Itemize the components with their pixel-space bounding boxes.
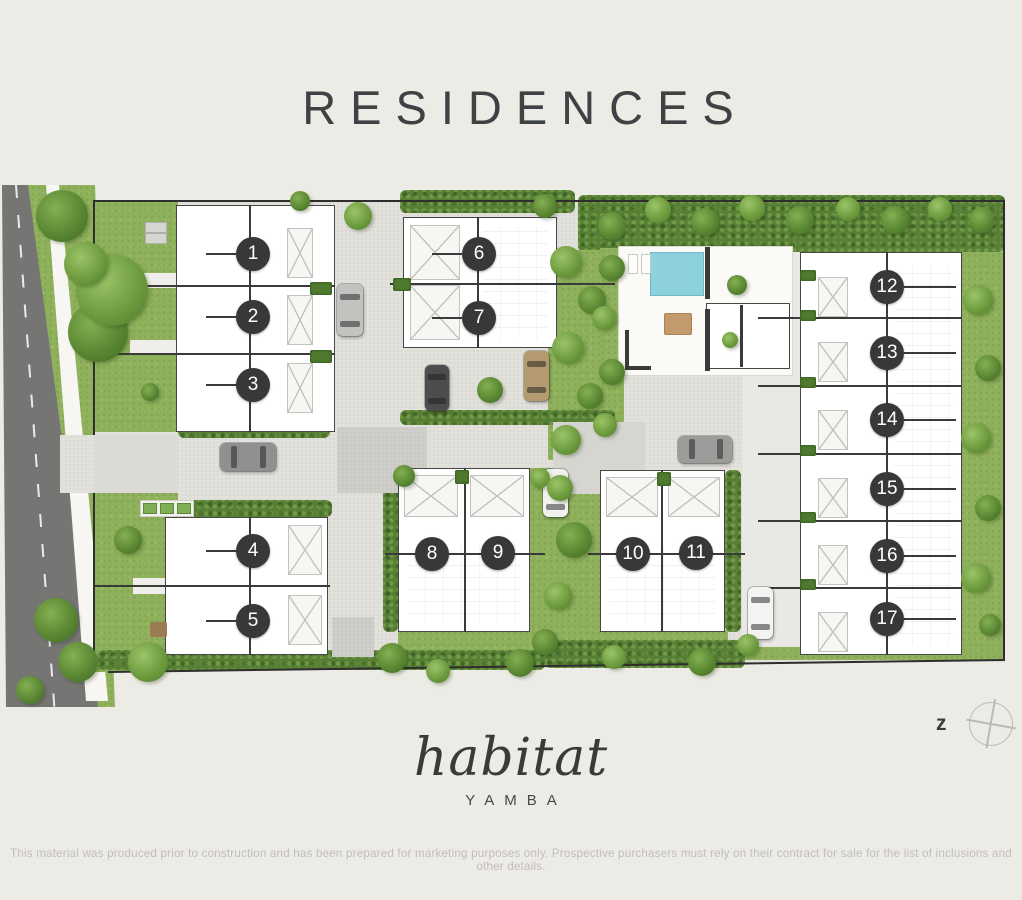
tree-icon [928, 197, 952, 221]
car-glass [527, 387, 546, 393]
marker-leader [432, 253, 462, 255]
tree-icon [532, 629, 558, 655]
disclaimer-text: This material was produced prior to cons… [0, 847, 1022, 873]
marker-leader [206, 253, 236, 255]
car-icon [524, 351, 549, 401]
logo-wordmark: habitat [0, 730, 1022, 787]
marker-leader [904, 555, 956, 557]
tree-icon [969, 207, 995, 233]
tree-icon [544, 582, 572, 610]
hedge-bar [800, 270, 816, 281]
tree-icon [593, 413, 617, 437]
marker-leader [904, 618, 956, 620]
tree-icon [58, 642, 98, 682]
residence-marker-5[interactable]: 5 [236, 604, 270, 638]
tree-icon [737, 634, 759, 656]
page-title: RESIDENCES [0, 80, 1022, 135]
tree-icon [16, 676, 44, 704]
residence-marker-4[interactable]: 4 [236, 534, 270, 568]
hedge-bar [800, 579, 816, 590]
hedge-bar [800, 512, 816, 523]
car-glass [428, 398, 446, 404]
lot-divider [758, 520, 962, 522]
hedge-bar [455, 470, 469, 484]
tree-icon [34, 598, 78, 642]
tree-icon [975, 355, 1001, 381]
garage-box [818, 277, 848, 317]
lot-divider [758, 453, 962, 455]
residence-marker-15[interactable]: 15 [870, 472, 904, 506]
tree-icon [533, 194, 557, 218]
marker-leader [206, 316, 236, 318]
garage-box [818, 342, 848, 382]
marker-leader [904, 352, 956, 354]
garage-box [818, 545, 848, 585]
residence-marker-9[interactable]: 9 [481, 536, 515, 570]
tree-icon [881, 206, 909, 234]
marker-leader [206, 620, 236, 622]
car-glass [260, 446, 266, 467]
tree-icon [36, 190, 88, 242]
hedge-bar [800, 445, 816, 456]
tree-icon [961, 423, 991, 453]
tree-icon [547, 475, 573, 501]
tree-icon [691, 208, 719, 236]
tree-icon [961, 563, 991, 593]
car-glass [340, 321, 360, 327]
lot-divider [390, 283, 615, 285]
marker-leader [904, 419, 956, 421]
alfresco-patio [332, 617, 374, 657]
garage-box [818, 410, 848, 450]
tree-icon [114, 526, 142, 554]
lot-divider [758, 317, 962, 319]
garage-box [287, 363, 313, 413]
garage-box [818, 478, 848, 518]
car-glass [428, 374, 446, 380]
amenity-wall [705, 247, 710, 299]
hedge-zone [175, 500, 332, 517]
car-glass [527, 361, 546, 367]
residence-marker-2[interactable]: 2 [236, 300, 270, 334]
garage-box [606, 477, 658, 517]
swimming-pool [650, 252, 704, 296]
tree-icon [722, 332, 738, 348]
tree-icon [592, 306, 616, 330]
tree-icon [645, 197, 671, 223]
party-wall [464, 468, 466, 632]
tree-icon [602, 645, 626, 669]
hedge-bar [310, 350, 332, 363]
tree-icon [599, 255, 625, 281]
car-glass [717, 439, 723, 460]
tree-icon [64, 242, 108, 286]
hedge-zone [725, 470, 741, 632]
tree-icon [727, 275, 747, 295]
tree-icon [344, 202, 372, 230]
marker-leader [904, 286, 956, 288]
visitor-parking [140, 500, 194, 517]
residence-marker-8[interactable]: 8 [415, 537, 449, 571]
tree-icon [506, 649, 534, 677]
logo-location: YAMBA [0, 792, 1022, 809]
hedge-bar [310, 282, 332, 295]
tree-icon [739, 195, 765, 221]
residence-marker-14[interactable]: 14 [870, 403, 904, 437]
tree-icon [598, 212, 626, 240]
planter-cell [143, 503, 157, 514]
site-boundary [1003, 200, 1005, 660]
hedge-bar [800, 310, 816, 321]
car-glass [751, 597, 770, 603]
tree-icon [377, 643, 407, 673]
planter-cell [160, 503, 174, 514]
amenity-wall [625, 330, 629, 370]
residence-marker-10[interactable]: 10 [616, 537, 650, 571]
entry-band [95, 435, 178, 493]
residence-marker-6[interactable]: 6 [462, 237, 496, 271]
lot-divider [758, 385, 962, 387]
tree-icon [551, 425, 581, 455]
brand-logo: habitat YAMBA [0, 730, 1022, 809]
party-wall [661, 470, 663, 632]
tree-icon [786, 206, 814, 234]
amenity-wall [740, 305, 743, 367]
car-glass [340, 294, 360, 300]
car-icon [337, 284, 363, 336]
residence-marker-3[interactable]: 3 [236, 368, 270, 402]
garden-bench [150, 622, 167, 637]
car-icon [220, 443, 276, 471]
brochure-page: RESIDENCES [0, 0, 1022, 900]
car-icon [425, 365, 449, 411]
car-glass [751, 624, 770, 630]
amenity-wall [625, 366, 651, 370]
residence-marker-1[interactable]: 1 [236, 237, 270, 271]
residence-marker-17[interactable]: 17 [870, 602, 904, 636]
marker-leader [432, 317, 462, 319]
marker-leader [904, 488, 956, 490]
garage-box [668, 477, 720, 517]
residence-marker-13[interactable]: 13 [870, 336, 904, 370]
residence-marker-16[interactable]: 16 [870, 539, 904, 573]
tree-icon [975, 495, 1001, 521]
lot-divider [758, 587, 962, 589]
outdoor-table [664, 313, 692, 335]
site-plan: 1234567891011121314151617 [0, 185, 1022, 707]
garage-box [410, 285, 460, 340]
hedge-bar [800, 377, 816, 388]
hedge-zone [383, 472, 398, 632]
garage-box [818, 612, 848, 652]
tree-icon [477, 377, 503, 403]
marker-leader [206, 384, 236, 386]
car-glass [546, 504, 565, 510]
tree-icon [963, 285, 993, 315]
garage-box [288, 595, 322, 645]
planter-cell [177, 503, 191, 514]
garage-box [470, 475, 524, 517]
lot-divider [95, 585, 330, 587]
marker-leader [206, 550, 236, 552]
hedge-bar [657, 472, 671, 486]
residence-marker-7[interactable]: 7 [462, 301, 496, 335]
residence-marker-11[interactable]: 11 [679, 536, 713, 570]
tree-icon [290, 191, 310, 211]
utility-box [145, 233, 167, 244]
car-glass [231, 446, 237, 467]
lot-divider [95, 353, 335, 355]
tree-icon [979, 614, 1001, 636]
tree-icon [426, 659, 450, 683]
pool-lounger [641, 254, 651, 274]
tree-icon [550, 246, 582, 278]
tree-icon [688, 648, 716, 676]
utility-box [145, 222, 167, 233]
car-icon [678, 436, 732, 463]
residence-marker-12[interactable]: 12 [870, 270, 904, 304]
front-wall [385, 553, 545, 555]
hedge-bar [393, 278, 411, 291]
amenity-wall [705, 309, 710, 371]
pool-lounger [628, 254, 638, 274]
garage-box [288, 525, 322, 575]
tree-icon [393, 465, 415, 487]
garage-box [287, 228, 313, 278]
car-icon [748, 587, 773, 639]
amenity-rooms [706, 303, 790, 369]
garage-box [287, 295, 313, 345]
tree-icon [556, 522, 592, 558]
tree-icon [552, 332, 584, 364]
front-wall [588, 553, 745, 555]
tree-icon [141, 383, 159, 401]
car-glass [689, 439, 695, 460]
tree-icon [836, 197, 860, 221]
site-boundary [93, 493, 95, 673]
tree-icon [599, 359, 625, 385]
tree-icon [128, 642, 168, 682]
tree-icon [577, 383, 603, 409]
